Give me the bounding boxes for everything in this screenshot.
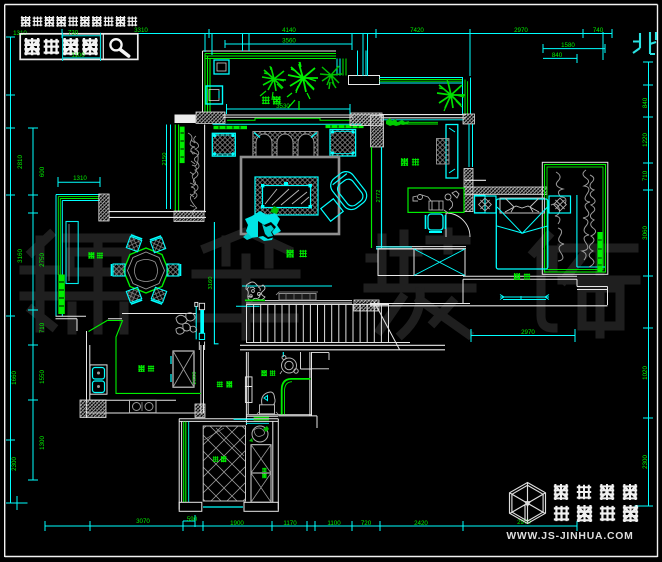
svg-text:2970: 2970 [521,329,535,336]
svg-text:3160: 3160 [17,249,24,263]
svg-text:3070: 3070 [136,518,150,525]
svg-text:2420: 2420 [414,520,428,527]
svg-text:2772: 2772 [376,190,382,203]
svg-text:1310: 1310 [73,175,87,182]
svg-text:2150: 2150 [162,153,168,166]
svg-text:1170: 1170 [283,520,297,527]
svg-text:1580: 1580 [561,42,575,49]
svg-text:740: 740 [593,27,604,34]
svg-text:710: 710 [39,322,46,333]
svg-text:3560: 3560 [282,38,296,45]
svg-text:590: 590 [187,516,198,523]
svg-text:2970: 2970 [514,27,528,34]
svg-text:720: 720 [361,520,372,527]
svg-text:1900: 1900 [230,520,244,527]
svg-text:710: 710 [642,170,649,181]
svg-text:2300: 2300 [192,372,198,385]
svg-text:1100: 1100 [71,52,85,59]
svg-text:1220: 1220 [642,133,649,147]
svg-text:7420: 7420 [410,27,424,34]
svg-text:2300: 2300 [642,455,649,469]
svg-text:730: 730 [68,30,79,37]
svg-text:3160: 3160 [208,277,214,290]
svg-text:4140: 4140 [282,27,296,34]
svg-text:2300: 2300 [11,457,18,471]
svg-text:840: 840 [552,52,563,59]
svg-text:WWW.JS-JINHUA.COM: WWW.JS-JINHUA.COM [506,531,633,542]
svg-text:2810: 2810 [17,155,24,169]
svg-text:2750: 2750 [39,253,46,267]
svg-text:1550: 1550 [39,370,46,384]
svg-text:1300: 1300 [39,436,46,450]
svg-text:1660: 1660 [11,371,18,385]
svg-text:1100: 1100 [327,520,341,527]
svg-text:1020: 1020 [642,366,649,380]
svg-text:3060: 3060 [642,226,649,240]
svg-text:840: 840 [642,97,649,108]
svg-text:600: 600 [39,166,46,177]
